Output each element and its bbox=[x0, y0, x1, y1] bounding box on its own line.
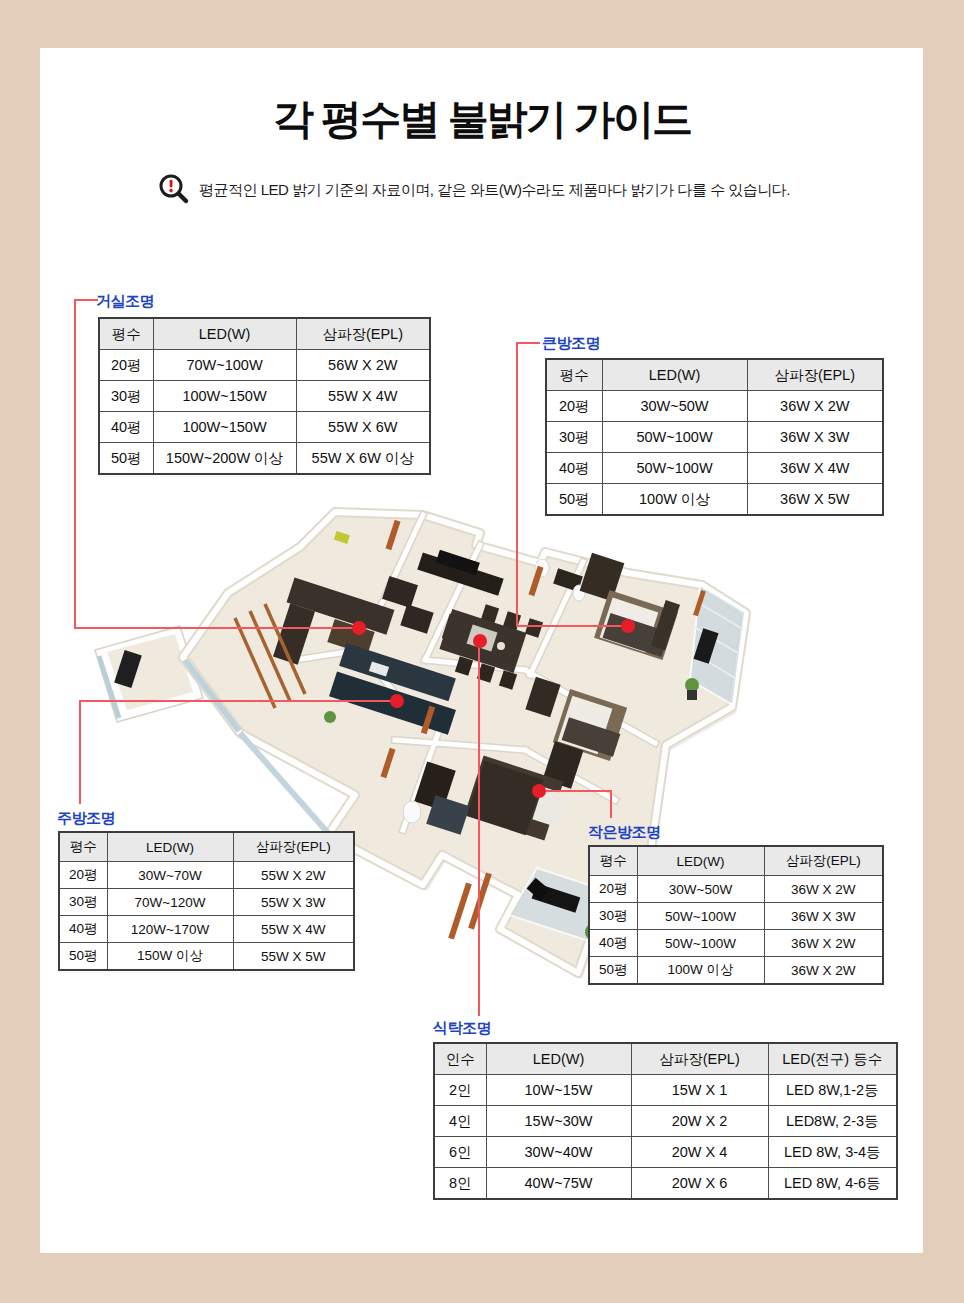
table-cell: 30W~70W bbox=[107, 862, 233, 889]
table-cell: 55W X 6W bbox=[296, 412, 430, 443]
small-room-connector-line bbox=[610, 790, 612, 818]
kitchen-table-label: 주방조명 bbox=[57, 809, 115, 828]
small-room-connector-line bbox=[543, 790, 612, 792]
table-cell: 15W X 1 bbox=[631, 1075, 768, 1106]
table-cell: 30W~40W bbox=[486, 1137, 631, 1168]
dining-location-dot bbox=[473, 634, 487, 648]
table-cell: LED 8W, 4-6등 bbox=[768, 1168, 897, 1200]
table-cell: 70W~120W bbox=[107, 889, 233, 916]
small-room-table-label: 작은방조명 bbox=[588, 823, 661, 842]
table-cell: 150W 이상 bbox=[107, 943, 233, 971]
table-row: 6인 30W~40W 20W X 4 LED 8W, 3-4등 bbox=[434, 1137, 897, 1168]
table-cell: 36W X 2W bbox=[764, 957, 883, 985]
table-cell: 20평 bbox=[59, 862, 107, 889]
table-cell: 55W X 4W bbox=[233, 916, 354, 943]
table-cell: 10W~15W bbox=[486, 1075, 631, 1106]
table-header-cell: 평수 bbox=[59, 832, 107, 862]
table-cell: 50평 bbox=[589, 957, 637, 985]
table-cell: 36W X 4W bbox=[747, 453, 883, 484]
table-header-cell: 삼파장(EPL) bbox=[296, 318, 430, 350]
table-header-cell: LED(전구) 등수 bbox=[768, 1043, 897, 1075]
table-row: 30평 50W~100W 36W X 3W bbox=[589, 903, 883, 930]
table-cell: 50W~100W bbox=[602, 453, 747, 484]
kitchen-connector-line bbox=[79, 700, 81, 804]
table-row: 50평 100W 이상 36W X 2W bbox=[589, 957, 883, 985]
table-cell: 120W~170W bbox=[107, 916, 233, 943]
table-header-cell: LED(W) bbox=[153, 318, 296, 350]
small-room-table: 평수 LED(W) 삼파장(EPL) 20평 30W~50W 36W X 2W … bbox=[588, 845, 884, 985]
table-cell: LED8W, 2-3등 bbox=[768, 1106, 897, 1137]
dining-table-label: 식탁조명 bbox=[433, 1019, 491, 1038]
table-header-cell: 삼파장(EPL) bbox=[631, 1043, 768, 1075]
table-row: 20평 30W~50W 36W X 2W bbox=[589, 876, 883, 903]
table-header-cell: 평수 bbox=[546, 359, 602, 391]
table-row: 20평 70W~100W 56W X 2W bbox=[99, 350, 430, 381]
table-cell: 36W X 2W bbox=[764, 930, 883, 957]
table-cell: 4인 bbox=[434, 1106, 486, 1137]
living-connector-line bbox=[74, 299, 76, 629]
table-cell: 100W 이상 bbox=[637, 957, 764, 985]
table-header-cell: LED(W) bbox=[602, 359, 747, 391]
table-cell: LED 8W, 3-4등 bbox=[768, 1137, 897, 1168]
table-header-cell: 평수 bbox=[99, 318, 153, 350]
table-cell: 15W~30W bbox=[486, 1106, 631, 1137]
table-cell: 6인 bbox=[434, 1137, 486, 1168]
table-cell: 20평 bbox=[546, 391, 602, 422]
big-room-location-dot bbox=[621, 619, 635, 633]
table-header-row: 평수 LED(W) 삼파장(EPL) bbox=[59, 832, 354, 862]
living-location-dot bbox=[352, 621, 366, 635]
big-room-connector-line bbox=[516, 342, 518, 627]
table-cell: 40평 bbox=[99, 412, 153, 443]
table-cell: 2인 bbox=[434, 1075, 486, 1106]
page-title: 각 평수별 불밝기 가이드 bbox=[0, 92, 964, 147]
table-header-cell: LED(W) bbox=[107, 832, 233, 862]
table-cell: 30W~50W bbox=[637, 876, 764, 903]
infographic-page: 각 평수별 불밝기 가이드 평균적인 LED 밝기 기준의 자료이며, 같은 와… bbox=[0, 0, 964, 1303]
table-cell: 55W X 4W bbox=[296, 381, 430, 412]
table-cell: 150W~200W 이상 bbox=[153, 443, 296, 475]
table-cell: 50평 bbox=[59, 943, 107, 971]
table-cell: 100W~150W bbox=[153, 381, 296, 412]
table-cell: 56W X 2W bbox=[296, 350, 430, 381]
table-row: 2인 10W~15W 15W X 1 LED 8W,1-2등 bbox=[434, 1075, 897, 1106]
table-cell: 36W X 5W bbox=[747, 484, 883, 516]
table-row: 30평 50W~100W 36W X 3W bbox=[546, 422, 883, 453]
table-header-cell: LED(W) bbox=[486, 1043, 631, 1075]
table-row: 50평 100W 이상 36W X 5W bbox=[546, 484, 883, 516]
table-cell: 8인 bbox=[434, 1168, 486, 1200]
table-header-cell: 삼파장(EPL) bbox=[233, 832, 354, 862]
table-cell: 70W~100W bbox=[153, 350, 296, 381]
table-row: 20평 30W~70W 55W X 2W bbox=[59, 862, 354, 889]
table-row: 4인 15W~30W 20W X 2 LED8W, 2-3등 bbox=[434, 1106, 897, 1137]
table-cell: 50W~100W bbox=[637, 903, 764, 930]
table-row: 40평 50W~100W 36W X 2W bbox=[589, 930, 883, 957]
table-row: 8인 40W~75W 20W X 6 LED 8W, 4-6등 bbox=[434, 1168, 897, 1200]
kitchen-connector-line bbox=[79, 700, 393, 702]
table-cell: 20W X 6 bbox=[631, 1168, 768, 1200]
table-row: 30평 100W~150W 55W X 4W bbox=[99, 381, 430, 412]
table-header-row: 평수 LED(W) 삼파장(EPL) bbox=[546, 359, 883, 391]
table-cell: 55W X 5W bbox=[233, 943, 354, 971]
table-header-row: 인수 LED(W) 삼파장(EPL) LED(전구) 등수 bbox=[434, 1043, 897, 1075]
table-cell: 36W X 3W bbox=[747, 422, 883, 453]
table-cell: 30평 bbox=[99, 381, 153, 412]
table-cell: 30평 bbox=[589, 903, 637, 930]
table-cell: 20평 bbox=[589, 876, 637, 903]
table-cell: 30평 bbox=[546, 422, 602, 453]
big-room-connector-line bbox=[516, 342, 540, 344]
kitchen-location-dot bbox=[390, 694, 404, 708]
living-connector-line bbox=[74, 299, 98, 301]
living-table: 평수 LED(W) 삼파장(EPL) 20평 70W~100W 56W X 2W… bbox=[98, 317, 431, 475]
magnifier-alert-icon bbox=[157, 173, 191, 207]
notice-text: 평균적인 LED 밝기 기준의 자료이며, 같은 와트(W)수라도 제품마다 밝… bbox=[199, 181, 790, 200]
table-cell: 20W X 2 bbox=[631, 1106, 768, 1137]
table-cell: 40평 bbox=[546, 453, 602, 484]
table-row: 50평 150W 이상 55W X 5W bbox=[59, 943, 354, 971]
dining-connector-line bbox=[478, 644, 480, 1016]
table-cell: 50평 bbox=[546, 484, 602, 516]
table-cell: 36W X 2W bbox=[747, 391, 883, 422]
table-row: 40평 50W~100W 36W X 4W bbox=[546, 453, 883, 484]
table-cell: 20W X 4 bbox=[631, 1137, 768, 1168]
table-cell: 20평 bbox=[99, 350, 153, 381]
table-header-cell: 삼파장(EPL) bbox=[764, 846, 883, 876]
table-cell: 36W X 2W bbox=[764, 876, 883, 903]
table-cell: 36W X 3W bbox=[764, 903, 883, 930]
notice: 평균적인 LED 밝기 기준의 자료이며, 같은 와트(W)수라도 제품마다 밝… bbox=[157, 173, 857, 209]
living-table-label: 거실조명 bbox=[96, 292, 154, 311]
table-cell: 55W X 6W 이상 bbox=[296, 443, 430, 475]
big-room-table-label: 큰방조명 bbox=[542, 334, 600, 353]
table-cell: 100W~150W bbox=[153, 412, 296, 443]
big-room-table: 평수 LED(W) 삼파장(EPL) 20평 30W~50W 36W X 2W … bbox=[545, 358, 884, 516]
table-cell: 55W X 3W bbox=[233, 889, 354, 916]
table-row: 50평 150W~200W 이상 55W X 6W 이상 bbox=[99, 443, 430, 475]
table-cell: 30평 bbox=[59, 889, 107, 916]
big-room-connector-line bbox=[516, 625, 624, 627]
table-header-cell: 인수 bbox=[434, 1043, 486, 1075]
table-cell: 40평 bbox=[589, 930, 637, 957]
living-connector-line bbox=[74, 627, 356, 629]
table-cell: 100W 이상 bbox=[602, 484, 747, 516]
small-room-location-dot bbox=[532, 784, 546, 798]
table-header-row: 평수 LED(W) 삼파장(EPL) bbox=[589, 846, 883, 876]
table-header-row: 평수 LED(W) 삼파장(EPL) bbox=[99, 318, 430, 350]
table-row: 40평 100W~150W 55W X 6W bbox=[99, 412, 430, 443]
table-cell: 40W~75W bbox=[486, 1168, 631, 1200]
table-row: 30평 70W~120W 55W X 3W bbox=[59, 889, 354, 916]
table-header-cell: 삼파장(EPL) bbox=[747, 359, 883, 391]
kitchen-table: 평수 LED(W) 삼파장(EPL) 20평 30W~70W 55W X 2W … bbox=[58, 831, 355, 971]
table-cell: 50W~100W bbox=[602, 422, 747, 453]
table-cell: 30W~50W bbox=[602, 391, 747, 422]
table-row: 20평 30W~50W 36W X 2W bbox=[546, 391, 883, 422]
table-cell: 50W~100W bbox=[637, 930, 764, 957]
table-header-cell: 평수 bbox=[589, 846, 637, 876]
table-cell: 50평 bbox=[99, 443, 153, 475]
table-row: 40평 120W~170W 55W X 4W bbox=[59, 916, 354, 943]
dining-table: 인수 LED(W) 삼파장(EPL) LED(전구) 등수 2인 10W~15W… bbox=[433, 1042, 898, 1200]
table-cell: LED 8W,1-2등 bbox=[768, 1075, 897, 1106]
table-cell: 55W X 2W bbox=[233, 862, 354, 889]
table-header-cell: LED(W) bbox=[637, 846, 764, 876]
table-cell: 40평 bbox=[59, 916, 107, 943]
